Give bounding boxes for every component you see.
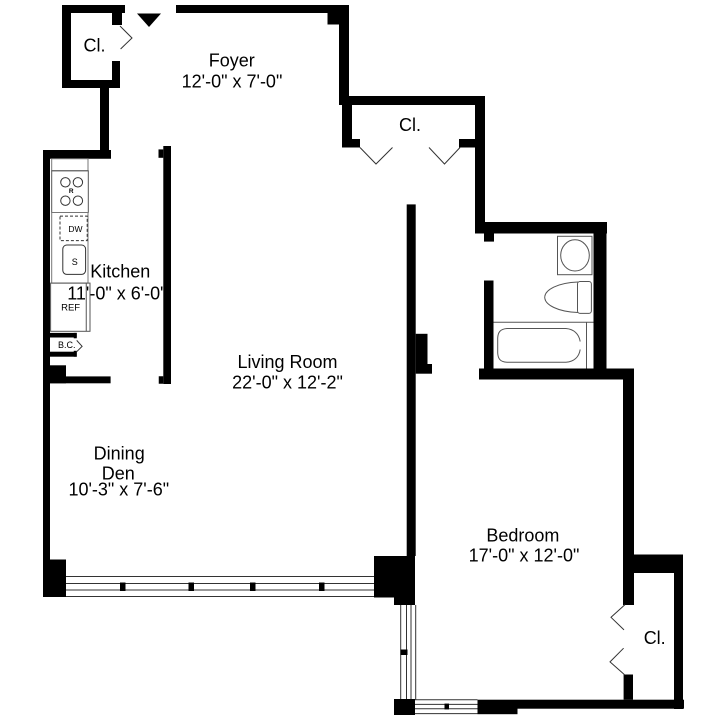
svg-text:Bedroom: Bedroom	[486, 526, 559, 546]
svg-text:R: R	[69, 188, 74, 195]
svg-text:Cl.: Cl.	[84, 36, 106, 56]
svg-text:Kitchen: Kitchen	[90, 261, 150, 281]
svg-text:S: S	[72, 257, 78, 267]
svg-text:Foyer: Foyer	[209, 51, 255, 71]
svg-text:Cl.: Cl.	[399, 115, 421, 135]
svg-text:11'-0" x 6'-0": 11'-0" x 6'-0"	[67, 284, 166, 304]
svg-text:Cl.: Cl.	[644, 628, 666, 648]
svg-text:Living Room: Living Room	[237, 352, 337, 372]
svg-text:12'-0" x 7'-0": 12'-0" x 7'-0"	[182, 72, 283, 92]
svg-text:Dining: Dining	[94, 444, 145, 464]
svg-text:17'-0" x 12'-0": 17'-0" x 12'-0"	[469, 545, 580, 565]
svg-text:REF: REF	[61, 303, 80, 314]
svg-text:10'-3" x 7'-6": 10'-3" x 7'-6"	[68, 480, 169, 500]
svg-text:DW: DW	[68, 224, 82, 234]
svg-text:B.C.: B.C.	[58, 340, 76, 350]
svg-text:22'-0" x 12'-2": 22'-0" x 12'-2"	[232, 373, 343, 393]
